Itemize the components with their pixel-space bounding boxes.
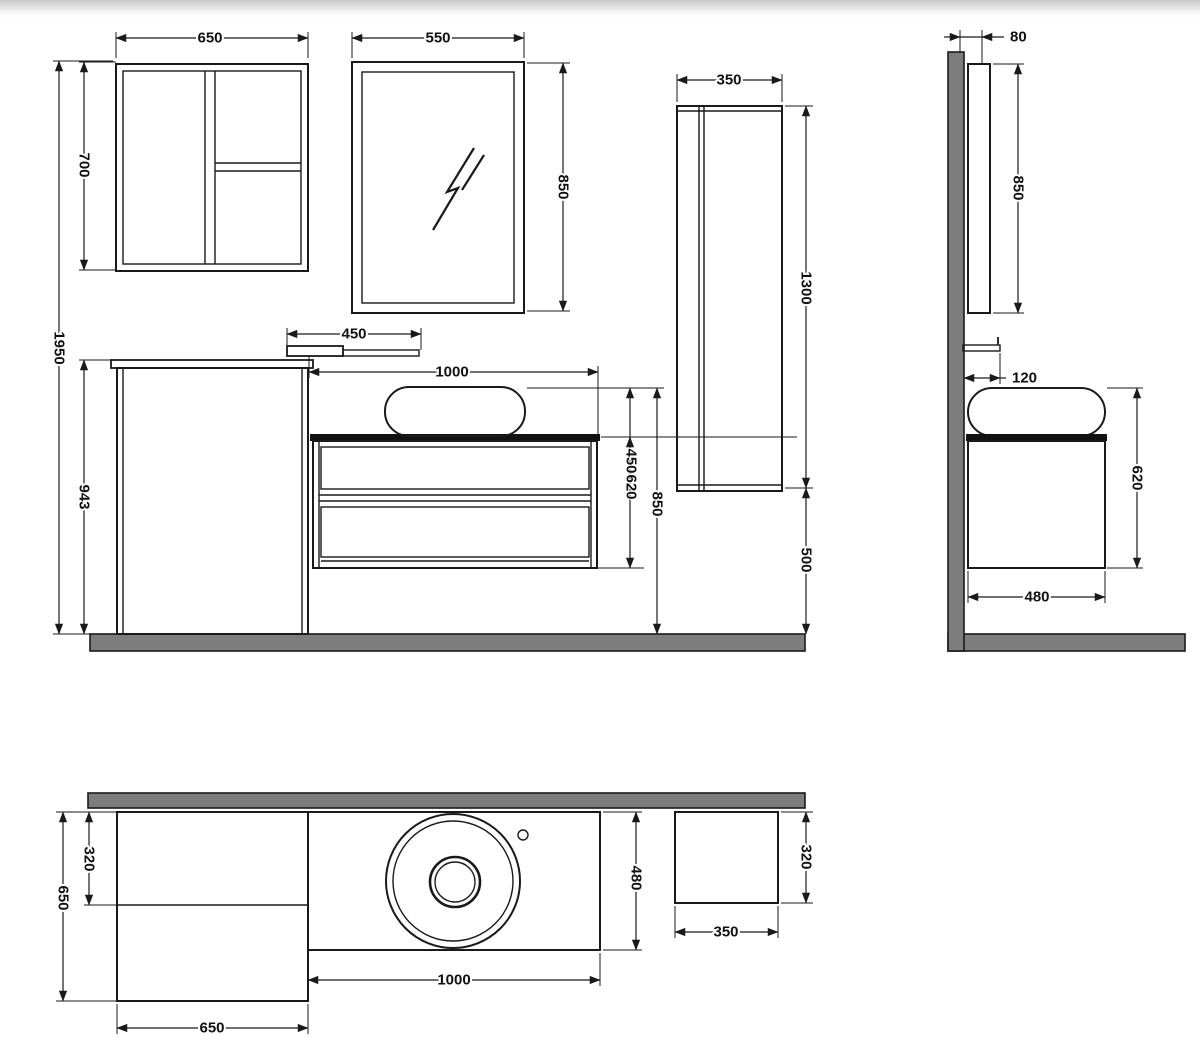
front-elevation	[90, 62, 805, 651]
dim-plan-base-cab-depth: 650	[55, 885, 72, 910]
dim-plan-vanity-depth: 480	[628, 865, 645, 890]
mirror-glass-icon	[433, 148, 484, 230]
dim-front-overall-height: 1950	[51, 331, 68, 364]
front-mirror	[352, 62, 524, 313]
dim-side-mirror-depth: 80	[1010, 29, 1027, 46]
front-wall-shelf	[287, 346, 419, 356]
cad-drawing-page: { "labels": { "front": { "wall_cab_width…	[0, 0, 1200, 1047]
dim-front-vanity-width: 1000	[435, 364, 468, 381]
dim-front-shelf-width: 450	[341, 326, 366, 343]
dim-side-shelf-depth: 120	[1012, 370, 1037, 387]
plan-dimensions: 650 320 650 1000 480 350 320	[55, 812, 815, 1037]
dim-front-mirror-height: 850	[555, 174, 572, 199]
dim-plan-wall-cab-depth: 320	[81, 846, 98, 871]
front-dimensions: 650 550 700 1950 943 450 1000	[51, 30, 815, 635]
dim-front-wall-cab-width: 650	[197, 30, 222, 47]
plan-sink-drain	[430, 857, 480, 907]
dim-front-basin-top-height: 850	[649, 491, 666, 516]
front-vanity-unit	[310, 387, 600, 568]
side-wall	[948, 52, 964, 651]
dim-front-tall-cab-height: 1300	[798, 271, 815, 304]
front-basin	[385, 387, 525, 436]
front-tall-cabinet	[677, 106, 782, 491]
side-vanity-cabinet	[968, 441, 1105, 568]
front-base-cabinet	[111, 360, 313, 634]
dim-front-mirror-width: 550	[425, 30, 450, 47]
dim-front-vanity-cab-height: 450	[623, 448, 640, 473]
dim-side-vanity-depth: 480	[1024, 589, 1049, 606]
plan-base-cabinet	[117, 812, 308, 1001]
plan-vanity	[308, 812, 600, 950]
front-wall-cabinet	[116, 64, 308, 271]
plan-tall-cabinet	[675, 812, 778, 903]
bathroom-furniture-technical-drawing: 650 550 700 1950 943 450 1000	[0, 0, 1200, 1047]
side-floor-slab	[948, 634, 1185, 651]
side-dimensions: 80 850 120 620 480	[944, 29, 1146, 606]
front-drawer-top	[321, 447, 589, 489]
plan-faucet-hole	[518, 830, 528, 840]
plan-view	[88, 793, 805, 1001]
dim-side-mirror-height: 850	[1010, 175, 1027, 200]
dim-side-vanity-height: 620	[1129, 465, 1146, 490]
dim-plan-tall-cab-depth: 320	[798, 844, 815, 869]
dim-plan-base-cab-width: 650	[199, 1020, 224, 1037]
side-basin	[968, 388, 1105, 436]
dim-front-tall-cab-width: 350	[716, 72, 741, 89]
dim-plan-vanity-width: 1000	[437, 972, 470, 989]
dim-front-tall-cab-clearance: 500	[798, 547, 815, 572]
dim-front-wall-cab-height: 700	[76, 152, 93, 177]
front-floor-slab	[90, 634, 805, 651]
dim-front-basin-to-cab-bottom: 620	[623, 474, 640, 499]
side-wall-shelf	[963, 337, 1000, 351]
side-elevation	[948, 52, 1185, 651]
dim-plan-tall-cab-width: 350	[713, 924, 738, 941]
dim-front-base-cab-height: 943	[76, 484, 93, 509]
side-mirror	[968, 64, 990, 313]
plan-wall	[88, 793, 805, 808]
front-drawer-bottom	[321, 507, 589, 557]
side-countertop	[966, 434, 1107, 441]
plan-sink-outer	[386, 814, 520, 948]
